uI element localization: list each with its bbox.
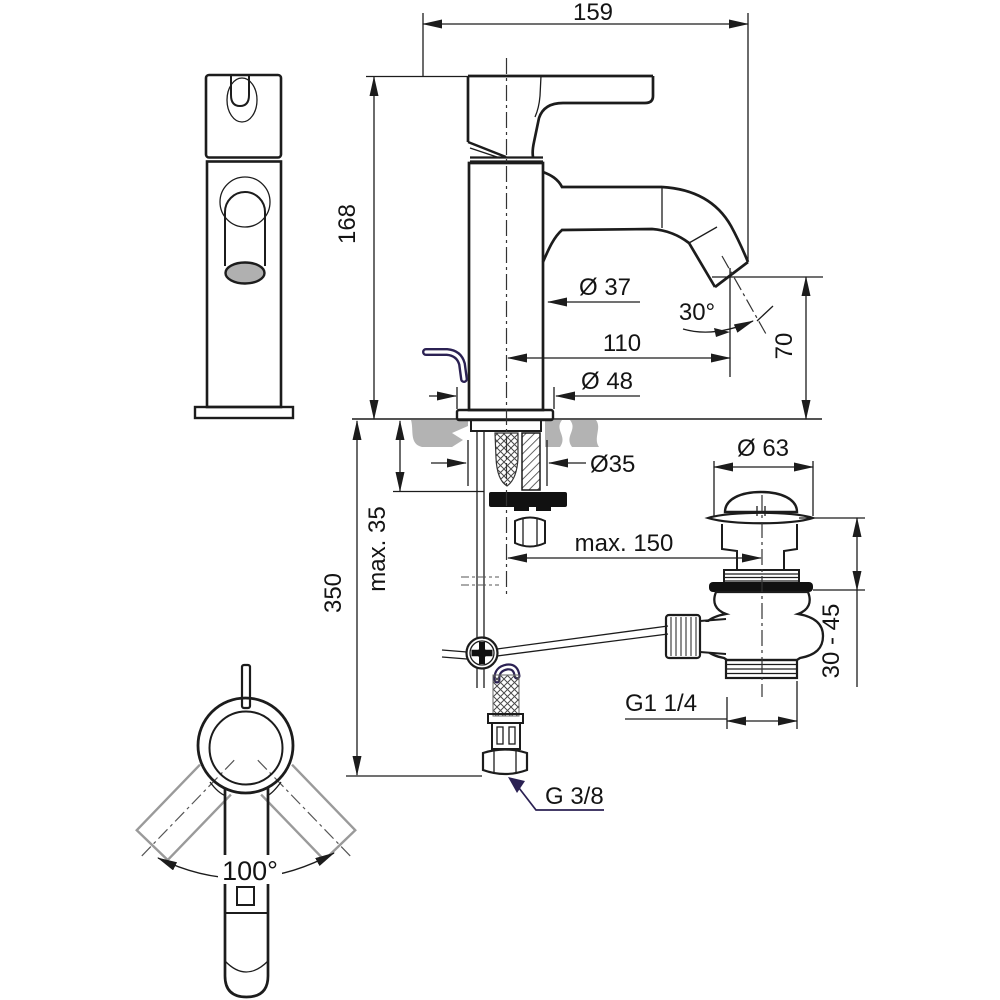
spout-angle-line	[722, 256, 766, 334]
ghost-spout-left	[125, 745, 250, 872]
technical-drawing-page: 100°	[0, 0, 1000, 1000]
braided-hose	[493, 675, 519, 716]
dim-supply-height: 350	[320, 573, 347, 613]
spout-outlet-face	[715, 262, 748, 287]
top-spout	[225, 788, 268, 997]
ghost-spout-right	[242, 745, 367, 872]
angle-tail	[757, 306, 773, 321]
front-base-plate	[195, 407, 293, 418]
dim-supply-thread: G 3/8	[545, 783, 604, 810]
front-spout-outlet	[226, 263, 265, 284]
dim-total-length: 159	[573, 0, 613, 26]
front-view	[195, 75, 293, 418]
dim-spout-reach: 110	[603, 330, 641, 357]
horseshoe-washer	[489, 492, 567, 507]
front-handle-block	[206, 75, 281, 158]
dim-base-diameter: Ø 48	[581, 368, 633, 395]
dim-body-height: 168	[334, 204, 361, 244]
phillips-screw-icon	[472, 642, 493, 664]
counter-left-gray	[411, 420, 468, 447]
dim-max-deck-thickness: max. 35	[364, 506, 391, 591]
washer-tab	[514, 507, 529, 511]
mounting-nut	[515, 518, 545, 547]
hose-slot	[509, 727, 515, 744]
threaded-stud	[522, 433, 540, 490]
knurl-ridges	[671, 617, 696, 656]
dim-waste-offset: max. 150	[575, 530, 674, 557]
waste-flange	[708, 513, 813, 524]
spout-bend-outer	[662, 187, 748, 262]
dimension-layer: 159 168 Ø 37 110 30° 70 Ø 48 Ø35	[320, 0, 865, 810]
dim-mounting-hole: Ø35	[590, 451, 635, 478]
spout-top	[543, 172, 662, 187]
hose-slot	[497, 727, 503, 744]
top-body-inner	[210, 712, 283, 785]
lever-cone-edge	[535, 76, 541, 117]
hose-nut	[483, 750, 527, 775]
g38-arrow	[508, 777, 525, 793]
dim-spout-angle: 30°	[679, 299, 715, 326]
dim-body-diameter: Ø 37	[579, 274, 631, 301]
port-top	[700, 619, 726, 621]
top-lever-tip	[237, 887, 254, 905]
rod-left	[442, 657, 467, 659]
rod-left	[442, 650, 467, 652]
waste-gasket	[709, 582, 813, 592]
spout-tip-joint-line	[689, 227, 717, 243]
dim-waste-cap-diameter: Ø 63	[737, 435, 789, 462]
waste-cap	[725, 492, 797, 512]
port-opening	[699, 622, 724, 652]
port-bottom	[700, 652, 726, 654]
dim-waste-clamp-range: 30 - 45	[818, 604, 845, 679]
dim-waste-thread: G1 1/4	[625, 690, 697, 717]
waste-neck	[722, 524, 797, 570]
dim-swivel-angle: 100°	[222, 856, 278, 886]
waste-assembly	[666, 492, 823, 697]
top-lever-stub	[242, 665, 250, 708]
hose-slotted-section	[492, 723, 520, 749]
faucet-dimension-drawing: 100°	[0, 0, 1000, 1000]
front-lever	[231, 75, 249, 106]
washer-tab	[536, 507, 551, 511]
top-view: 100°	[125, 665, 367, 997]
front-spout-tube	[225, 192, 265, 266]
dim-outlet-height: 70	[771, 333, 798, 360]
top-spout-inner-arc	[225, 961, 268, 972]
lever-end	[563, 76, 653, 103]
